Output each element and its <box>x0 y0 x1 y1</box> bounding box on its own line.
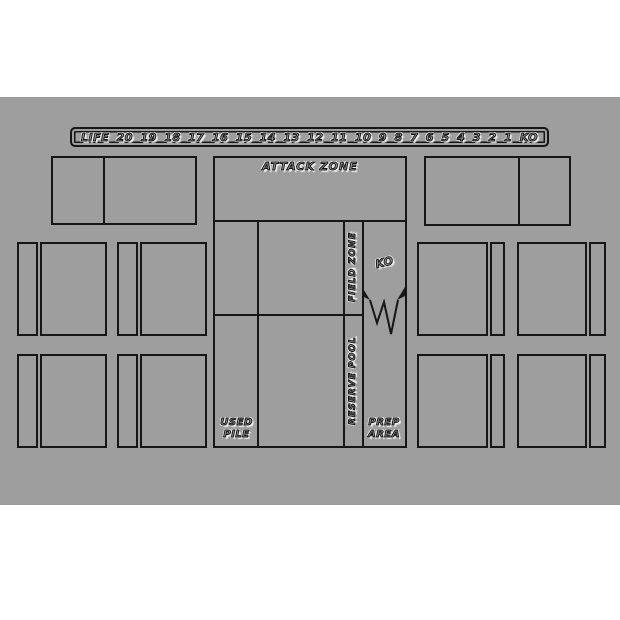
life-value: 19 <box>140 131 156 144</box>
life-value: 15 <box>236 131 252 144</box>
left-card-slot-r1c1 <box>40 242 107 336</box>
life-value: 3 <box>473 131 481 144</box>
life-value: 17 <box>188 131 204 144</box>
life-counter-track: LIFE 2019181716151413121110987654321 KO <box>70 127 549 147</box>
life-value: 12 <box>307 131 323 144</box>
life-values: 2019181716151413121110987654321 <box>109 131 520 144</box>
right-card-slot-r1c1 <box>417 242 488 336</box>
right-card-strip-r1c2 <box>589 242 606 336</box>
life-value: 16 <box>212 131 228 144</box>
life-label: LIFE <box>81 131 109 144</box>
right-card-slot-r2c2 <box>517 354 587 448</box>
left-card-slot-r2c2 <box>140 354 207 448</box>
attack-zone-label: ATTACK ZONE <box>215 160 405 173</box>
life-value: 14 <box>260 131 276 144</box>
life-value: 9 <box>379 131 387 144</box>
prep-area-label: PREP AREA <box>363 417 405 441</box>
left-card-slot-r1c2 <box>140 242 207 336</box>
life-value: 1 <box>504 131 512 144</box>
ko-tear-jagged-edge <box>362 284 405 340</box>
right-card-slot-r1c2 <box>517 242 587 336</box>
right-card-strip-r2c1 <box>490 354 505 448</box>
attack-zone-divider <box>215 220 405 222</box>
top-right-card-zone <box>424 156 571 226</box>
life-value: 7 <box>410 131 418 144</box>
left-card-slot-r2c1 <box>40 354 107 448</box>
life-value: 20 <box>117 131 133 144</box>
life-value: 11 <box>331 131 347 144</box>
life-ko-label: KO <box>520 131 538 144</box>
top-left-zone-divider <box>103 156 105 225</box>
left-column-divider <box>257 220 259 446</box>
life-value: 5 <box>441 131 449 144</box>
right-card-slot-r2c1 <box>417 354 488 448</box>
right-card-strip-r2c2 <box>589 354 606 448</box>
top-right-zone-divider <box>518 156 520 226</box>
mid-horizontal-divider <box>215 314 364 316</box>
central-play-area: ATTACK ZONE FIELD ZONE RESERVE POOL KO U… <box>213 156 407 448</box>
life-value: 10 <box>355 131 371 144</box>
right-card-strip-r1c1 <box>490 242 505 336</box>
playmat-image: LIFE 2019181716151413121110987654321 KO … <box>0 0 620 620</box>
reserve-pool-label: RESERVE POOL <box>344 318 362 444</box>
life-value: 4 <box>457 131 465 144</box>
life-value: 2 <box>488 131 496 144</box>
left-card-strip-r1c2 <box>117 242 138 336</box>
left-card-strip-r2c1 <box>17 354 38 448</box>
life-value: 18 <box>164 131 180 144</box>
top-left-card-zone <box>51 156 197 225</box>
used-pile-label: USED PILE <box>216 417 257 441</box>
field-zone-label: FIELD ZONE <box>344 222 362 312</box>
life-value: 6 <box>426 131 434 144</box>
life-value: 13 <box>283 131 299 144</box>
left-card-strip-r1c1 <box>17 242 38 336</box>
life-value: 8 <box>394 131 402 144</box>
ko-zone-label: KO <box>363 251 406 274</box>
left-card-strip-r2c2 <box>117 354 138 448</box>
